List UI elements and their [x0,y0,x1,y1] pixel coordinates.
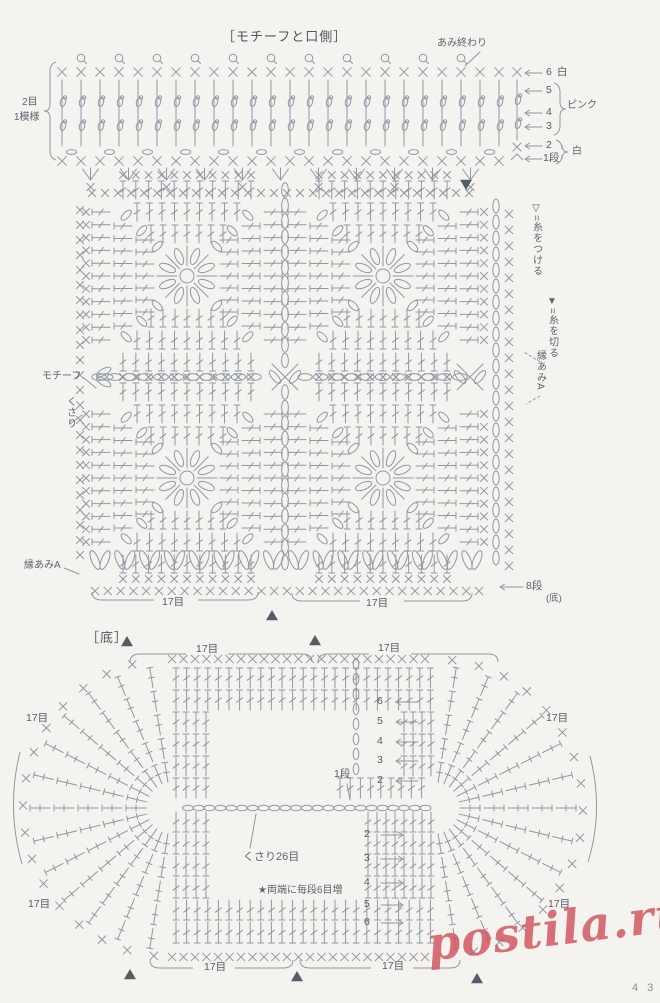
lower-row-3: 3 [364,852,370,864]
count-side-left-lower: 17目 [28,898,50,910]
count-side-right-upper: 17目 [546,712,568,724]
chain-label: くさり [64,396,76,429]
count-bottom-left: 17目 [204,961,226,973]
row-number-4: 4 [546,106,552,118]
count-bottom-right: 17目 [382,960,404,972]
crochet-pattern-page: ［モチーフと口側］ あみ終わり 2目 1模様 6 白 5 4 ピンク 3 2 1… [0,0,660,1003]
lower-row-6: 6 [364,916,370,928]
row-number-3: 3 [546,120,552,132]
repeat-label-line1: 2目 [22,97,38,109]
row-number-1: 1段 [543,152,559,164]
count-side-left-upper: 17目 [26,712,48,724]
row-number-5: 5 [546,84,552,96]
row-6-color: 白 [557,66,568,78]
upper-row-3: 3 [377,754,383,766]
legend-attach-yarn: ▽=糸をつける [530,203,542,277]
page-number: 4 3 [632,982,656,994]
motif-label: モチーフ [42,371,81,383]
increase-note: ★両端に毎段6目増 [258,885,343,897]
upper-row-2: 2 [377,774,383,786]
lower-row-4: 4 [364,876,370,888]
lower-row-5: 5 [364,898,370,910]
motif-count-right: 17目 [366,597,388,609]
upper-row-6: 6 [377,695,383,707]
legend-cut-yarn: ▼=糸を切る [546,296,558,359]
row-number-2: 2 [546,139,552,151]
top-section-title: ［モチーフと口側］ [222,30,347,45]
upper-row-5: 5 [377,715,383,727]
upper-row-4: 4 [377,735,383,747]
edge-a-left-label: 縁あみA [24,560,61,572]
row-8-label: 8段 [526,580,542,592]
motif-count-left: 17目 [162,596,184,608]
lower-row-2: 2 [364,828,370,840]
row-1-color: 白 [572,146,582,158]
count-top-right: 17目 [378,642,400,654]
count-top-left: 17目 [196,643,218,655]
repeat-label-line2: 1模様 [14,112,40,124]
bottom-section-title: ［底］ [86,631,128,646]
row-8-sub-label: (底) [546,594,562,605]
crochet-chart-art [0,0,660,1003]
foundation-chain-label: くさり26目 [243,851,299,864]
edge-a-right-label: 縁あみA [534,350,546,391]
row-4-color: ピンク [567,100,597,112]
row-number-6: 6 [546,66,552,78]
finish-label: あみ終わり [437,38,487,50]
first-row-label: 1段 [334,768,350,780]
